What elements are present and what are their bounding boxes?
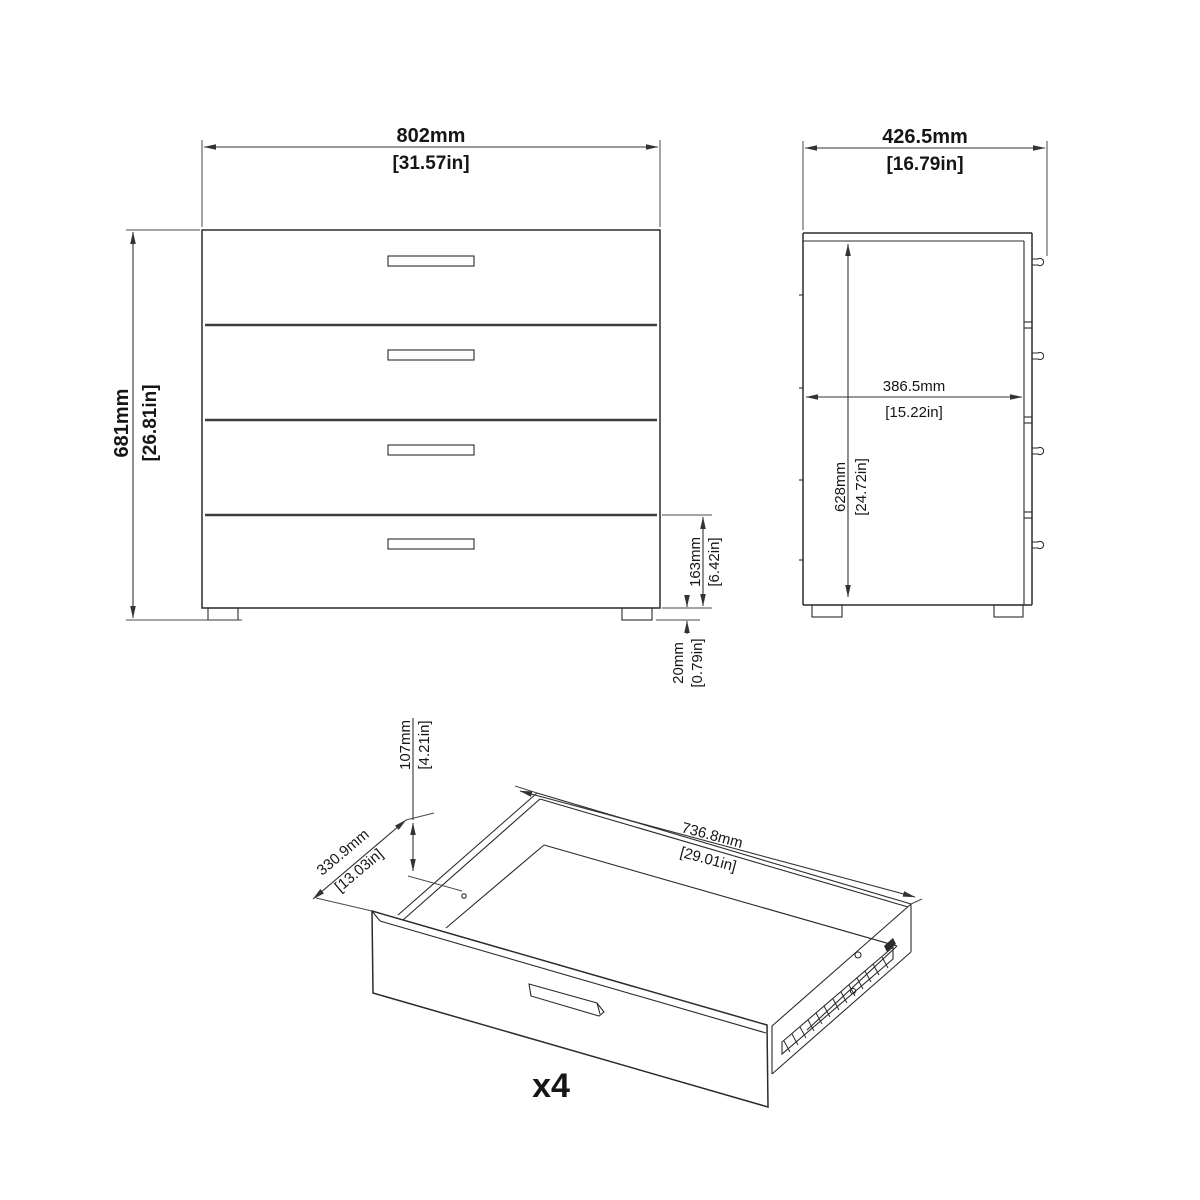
dim-inner-height: 628mm [24.72in] [832, 244, 870, 597]
foot-height-mm-label: 20mm [670, 642, 687, 684]
drawer-height-mm-label: 163mm [687, 537, 704, 587]
rail-screw-icon [855, 952, 861, 958]
dim-drawer-height: 107mm [4.21in] [397, 718, 462, 891]
inner-height-in-label: [24.72in] [853, 458, 870, 516]
technical-drawing: 802mm [31.57in] 681mm [26.81in] 163mm [6… [0, 0, 1200, 1200]
dim-foot-height: 20mm [0.79in] [656, 595, 706, 688]
side-view-drawing: 426.5mm [16.79in] 386.5mm [15.22in] 628m… [799, 126, 1047, 617]
side-depth-mm-label: 426.5mm [882, 126, 968, 148]
drawer-knobs-side [1032, 258, 1044, 548]
front-view-drawing: 802mm [31.57in] 681mm [26.81in] 163mm [6… [111, 125, 723, 688]
inner-depth-in-label: [15.22in] [885, 404, 943, 421]
drawer-front-panel [372, 911, 768, 1107]
front-width-mm-label: 802mm [397, 125, 466, 147]
cabinet-feet-front [208, 608, 652, 620]
dim-drawer-width: 736.8mm [29.01in] [515, 786, 922, 904]
dim-drawer-depth: 330.9mm [13.03in] [313, 813, 434, 911]
drawer-isometric-drawing: 107mm [4.21in] 330.9mm [13.03in] 736.8mm… [313, 718, 922, 1107]
dim-side-depth: 426.5mm [16.79in] [803, 126, 1047, 256]
cabinet-feet-side [812, 605, 1023, 617]
drawer-height-in-label: [6.42in] [706, 537, 723, 586]
front-width-in-label: [31.57in] [392, 153, 469, 174]
drawer-box-lines [398, 793, 911, 1030]
drawer-handles-front [388, 256, 474, 549]
drawer-divider-lines [205, 325, 657, 515]
drawer-handle-isometric [529, 984, 604, 1016]
rail-hatching [784, 957, 888, 1052]
inner-height-mm-label: 628mm [832, 462, 849, 512]
drawer-iso-height-in-label: [4.21in] [416, 720, 433, 769]
side-depth-in-label: [16.79in] [886, 154, 963, 175]
side-drawer-gaps [1024, 322, 1032, 518]
dim-bottom-drawer: 163mm [6.42in] [662, 515, 723, 608]
dim-inner-depth: 386.5mm [15.22in] [806, 378, 1022, 421]
drawer-side-wall [772, 904, 911, 1074]
inner-depth-mm-label: 386.5mm [883, 378, 946, 395]
drawing-page: 802mm [31.57in] 681mm [26.81in] 163mm [6… [0, 0, 1200, 1200]
front-height-in-label: [26.81in] [140, 384, 161, 461]
dim-front-width: 802mm [31.57in] [202, 125, 660, 227]
drawer-slide-rail [782, 938, 896, 1054]
drawer-iso-height-mm-label: 107mm [397, 720, 414, 770]
foot-height-in-label: [0.79in] [689, 638, 706, 687]
front-height-mm-label: 681mm [111, 389, 133, 458]
drawer-quantity-label: x4 [532, 1067, 570, 1105]
dim-front-height: 681mm [26.81in] [111, 230, 242, 620]
